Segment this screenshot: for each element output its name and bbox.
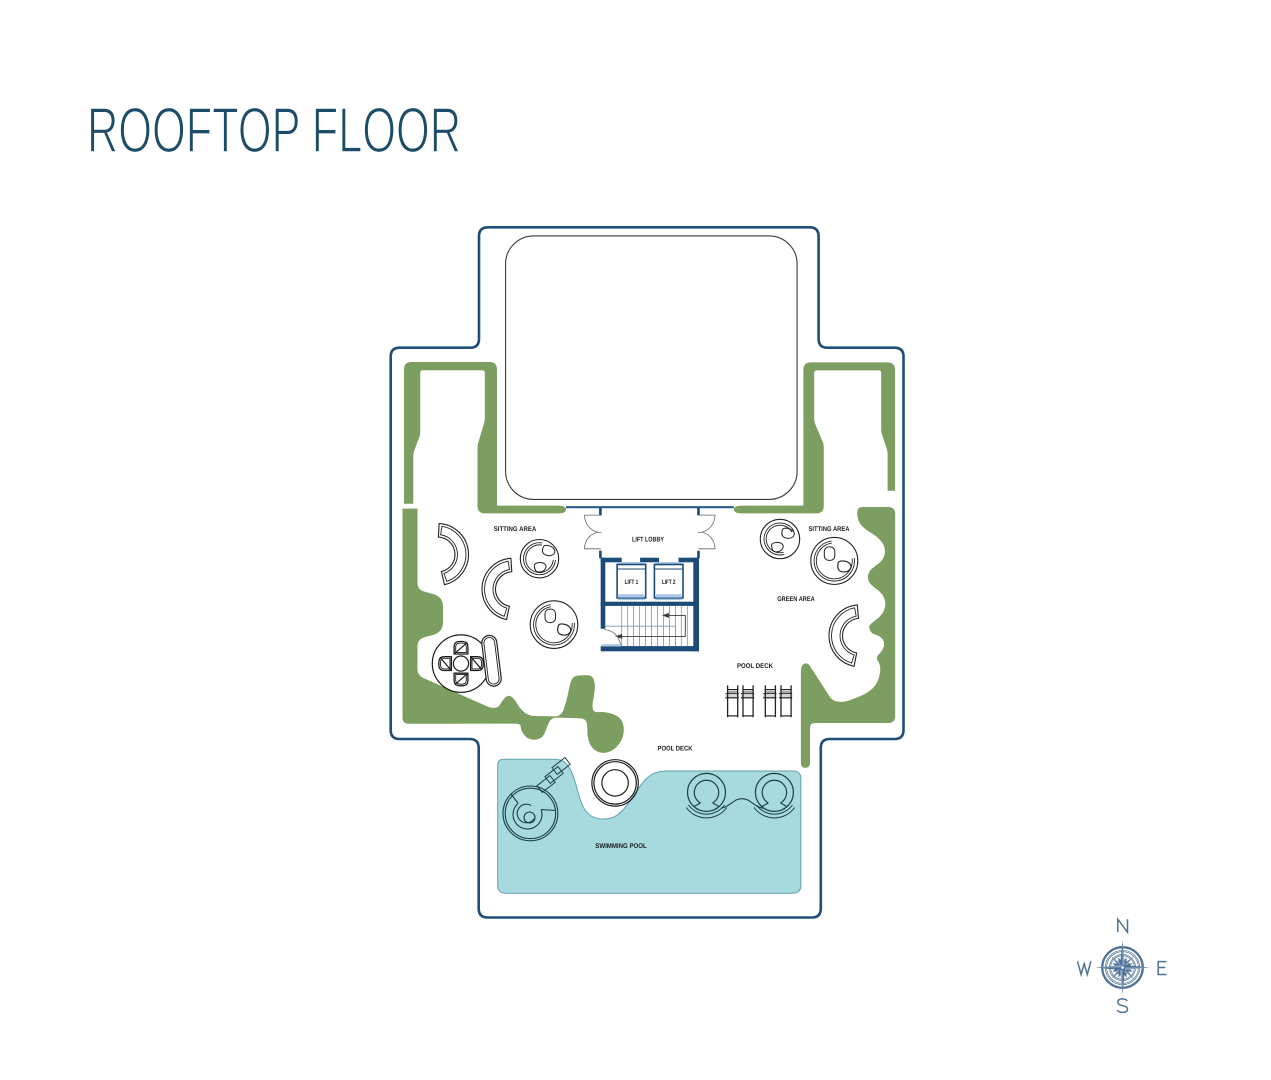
svg-text:SITTING AREA: SITTING AREA [809,526,850,533]
svg-text:LIFT 2: LIFT 2 [662,579,676,586]
svg-text:LIFT 1: LIFT 1 [625,579,639,586]
svg-text:ROOFTOP FLOOR: ROOFTOP FLOOR [87,94,461,166]
svg-text:LIFT LOBBY: LIFT LOBBY [632,536,664,543]
svg-text:POOL DECK: POOL DECK [658,746,693,753]
svg-text:GREEN AREA: GREEN AREA [777,596,815,603]
svg-text:POOL DECK: POOL DECK [737,663,773,670]
svg-text:SWIMMING POOL: SWIMMING POOL [595,843,647,850]
svg-text:SITTING AREA: SITTING AREA [494,526,537,533]
